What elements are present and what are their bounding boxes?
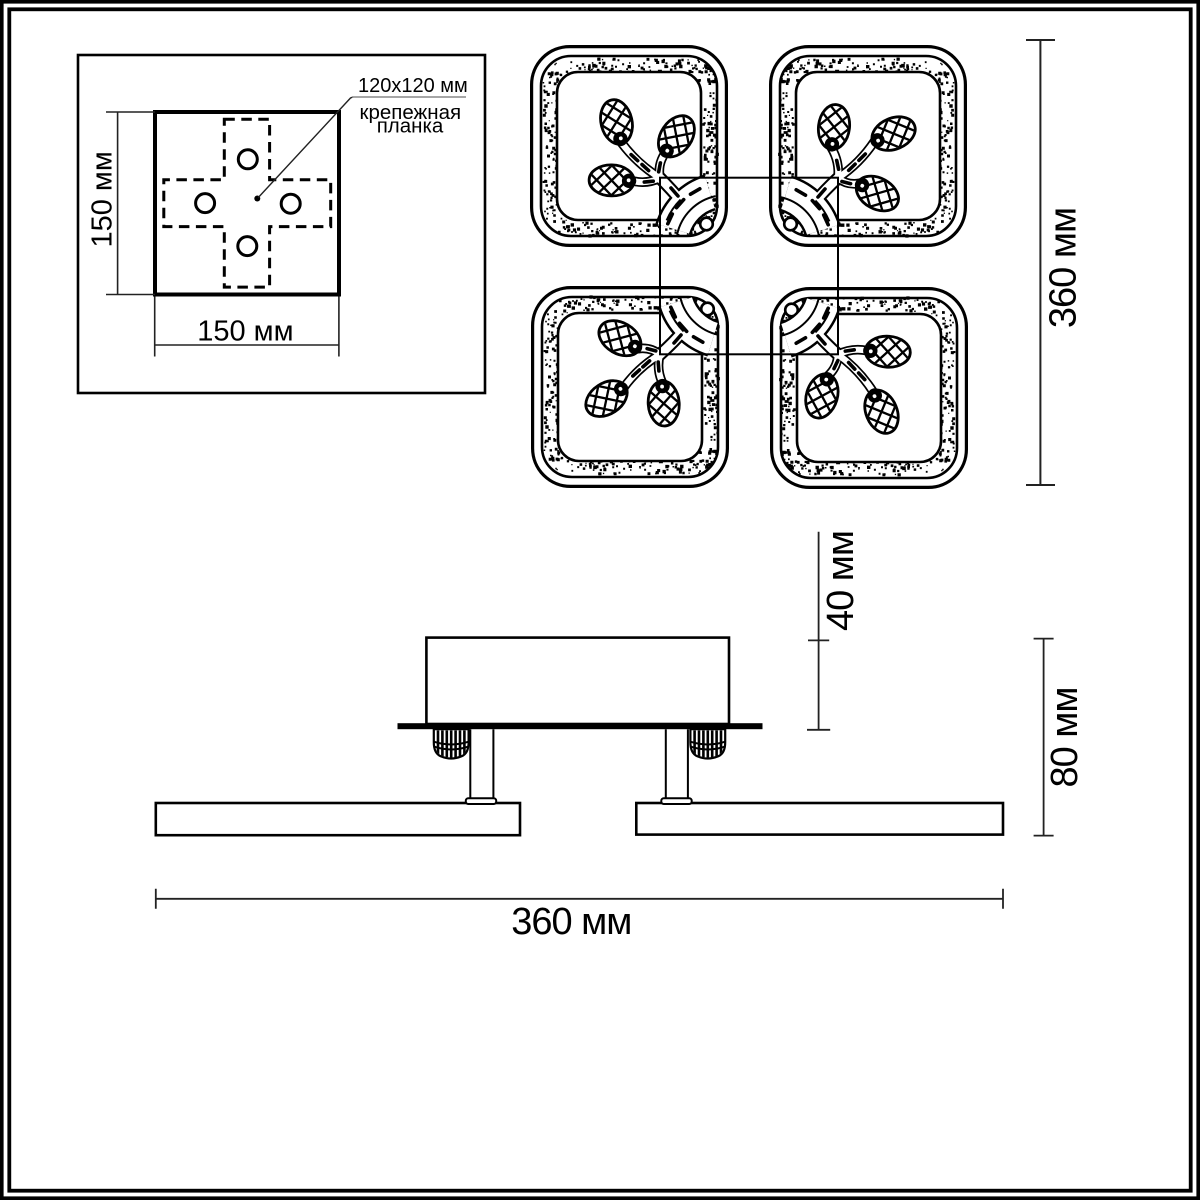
svg-text:360 мм: 360 мм: [1043, 208, 1085, 328]
svg-text:150 мм: 150 мм: [197, 316, 293, 348]
svg-text:150 мм: 150 мм: [87, 151, 119, 247]
svg-text:120x120 мм: 120x120 мм: [358, 75, 468, 97]
svg-text:80 мм: 80 мм: [1044, 687, 1086, 787]
svg-text:планка: планка: [377, 115, 444, 138]
svg-text:360 мм: 360 мм: [511, 901, 631, 943]
svg-text:40 мм: 40 мм: [820, 531, 862, 631]
